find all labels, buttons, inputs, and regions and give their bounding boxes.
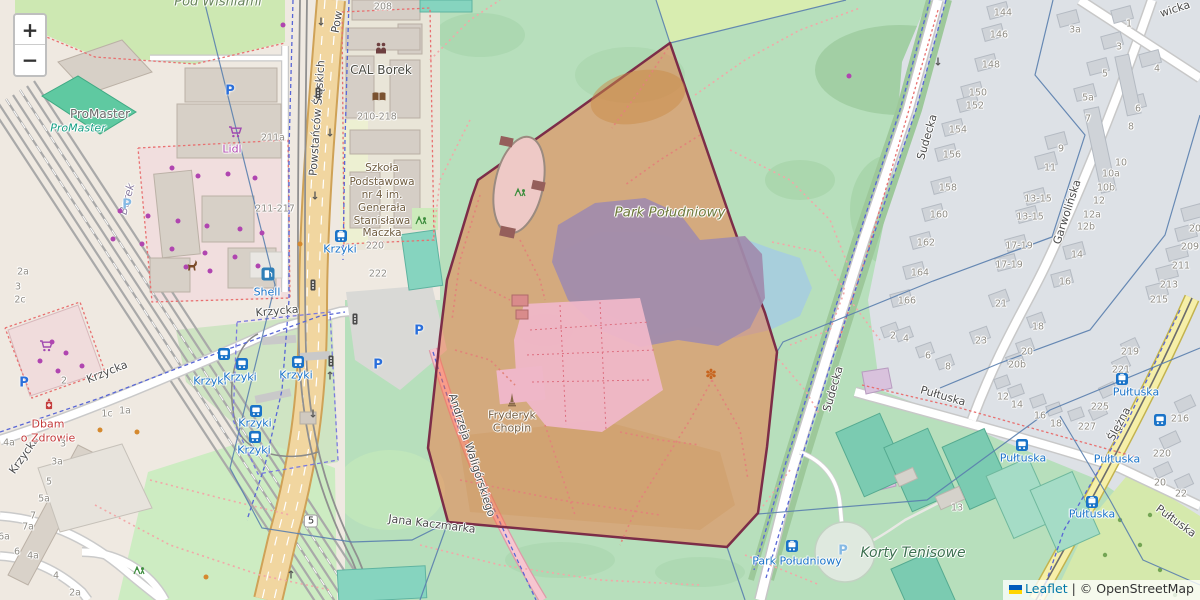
cart-icon xyxy=(228,126,242,139)
map-label: ProMaster xyxy=(50,123,105,134)
house-number: 20 xyxy=(1021,347,1033,357)
house-number: 222 xyxy=(369,269,387,279)
playground-icon xyxy=(132,564,146,576)
house-number: 4 xyxy=(903,334,909,344)
house-number: 4a xyxy=(27,551,39,561)
bus-icon xyxy=(218,348,231,361)
map-label: Szkoła xyxy=(365,163,399,174)
poi-dot xyxy=(170,166,175,171)
poi-dot xyxy=(281,23,286,28)
house-number: 2a xyxy=(17,267,29,277)
trafficlight-icon xyxy=(329,356,334,367)
arrow-up-icon: ↑ xyxy=(325,371,334,382)
zoom-in-button[interactable]: + xyxy=(15,15,45,45)
house-number: 12b xyxy=(1077,222,1095,232)
map-label: Lidl xyxy=(222,144,241,155)
zoom-control: + − xyxy=(13,13,47,77)
trafficlight-icon xyxy=(353,314,358,325)
house-number: 210-218 xyxy=(357,112,397,122)
house-number: 211 xyxy=(1172,261,1190,271)
house-number: 13-15 xyxy=(1024,194,1052,204)
house-number: 12 xyxy=(997,392,1009,402)
house-number: 156 xyxy=(943,150,961,160)
map-label: Pułtuska xyxy=(1113,387,1159,398)
house-number: 10a xyxy=(1102,169,1120,179)
map-label: Pułtuska xyxy=(1000,453,1046,464)
tram-icon xyxy=(786,540,799,553)
map-label: wicka xyxy=(1159,0,1192,19)
house-number: 227 xyxy=(1078,422,1096,432)
house-number: 216 xyxy=(1171,414,1189,424)
monument-icon xyxy=(508,393,517,407)
house-number: 3 xyxy=(1116,42,1122,52)
arrow-down-icon: ↓ xyxy=(308,409,317,420)
map-label: Pod Wiśniami xyxy=(174,0,262,9)
map-label: nr 4 im. xyxy=(362,190,403,201)
poi-dot xyxy=(118,209,123,214)
house-number: 211-217 xyxy=(255,204,295,214)
poi-dot xyxy=(203,251,208,256)
attribution: Leaflet | © OpenStreetMap xyxy=(1003,580,1200,600)
house-number: 20b xyxy=(1008,360,1026,370)
poi-dot xyxy=(140,242,145,247)
map-label: Jana Kaczmarka xyxy=(388,513,476,535)
house-number: 18 xyxy=(1050,419,1062,429)
fuel-icon xyxy=(262,268,275,281)
map-label: Krzyki xyxy=(237,445,270,456)
map-label: Krzycka xyxy=(255,304,299,319)
trafficlight-icon xyxy=(316,88,321,99)
parking-icon: P xyxy=(19,377,29,390)
house-number: 20 xyxy=(1154,478,1166,488)
house-number: 220 xyxy=(366,241,384,251)
house-number: 152 xyxy=(966,101,984,111)
house-number: 2 xyxy=(61,376,67,386)
house-number: 7 xyxy=(30,511,36,521)
house-number: 20 xyxy=(1189,224,1200,234)
map-canvas[interactable]: Powstańców Ś​ląskichPowKrzyckaKrzyckaKrz… xyxy=(0,0,1200,600)
house-number: 5 xyxy=(46,477,52,487)
map-label: Stanisława xyxy=(354,216,411,227)
map-label: Fryderyk xyxy=(488,410,536,421)
house-number: 6 xyxy=(925,351,931,361)
house-number: 225 xyxy=(1091,402,1109,412)
house-number: 2c xyxy=(14,295,25,305)
map-label: Pułtuska xyxy=(1069,509,1115,520)
house-number: 148 xyxy=(982,60,1000,70)
house-number: 14 xyxy=(1011,400,1023,410)
house-number: 12a xyxy=(1083,210,1101,220)
house-number: 5 xyxy=(1102,69,1108,79)
map-label: Krzycka xyxy=(85,359,129,385)
poi-dot xyxy=(208,269,213,274)
poi-dot xyxy=(205,224,210,229)
house-number: 9 xyxy=(1058,144,1064,154)
tram-icon xyxy=(1116,373,1129,386)
ukraine-flag-icon xyxy=(1009,585,1022,594)
playground-icon xyxy=(414,214,428,226)
book-icon xyxy=(372,92,387,103)
house-number: 7a xyxy=(22,522,34,532)
bus-icon xyxy=(1154,414,1167,427)
poi-dot xyxy=(204,575,209,580)
house-number: 219 xyxy=(1121,347,1139,357)
flower-icon: ✽ xyxy=(705,368,717,382)
house-number: 220 xyxy=(1153,449,1171,459)
map-label: Krzyki xyxy=(323,244,356,255)
poi-dot xyxy=(50,340,55,345)
map-label: Ślężna xyxy=(1106,405,1133,442)
map-label: CAL Borek xyxy=(350,64,412,76)
poi-dot xyxy=(135,430,140,435)
house-number: 158 xyxy=(939,183,957,193)
map-label: ProMaster xyxy=(70,108,130,120)
bus-icon xyxy=(249,431,262,444)
house-number: 6a xyxy=(0,532,10,542)
house-number: 8 xyxy=(1128,122,1134,132)
house-number: 5a xyxy=(1082,93,1094,103)
house-number: 14 xyxy=(1071,250,1083,260)
house-number: 146 xyxy=(990,30,1008,40)
poi-dot xyxy=(38,359,43,364)
house-number: 23 xyxy=(975,336,987,346)
bus-icon xyxy=(1016,439,1029,452)
poi-dot xyxy=(196,174,201,179)
map-label: Pułtuska xyxy=(1094,454,1140,465)
osm-copyright: © OpenStreetMap xyxy=(1080,581,1194,596)
arrow-down-icon: ↓ xyxy=(316,17,325,28)
house-number: 12 xyxy=(1093,196,1105,206)
house-number: 11 xyxy=(1044,163,1056,173)
parking-light-icon: P xyxy=(838,545,848,558)
poi-dot xyxy=(253,176,258,181)
house-number: 10b xyxy=(1097,183,1115,193)
map-label: Pułtuska xyxy=(1154,503,1198,539)
map-label: Maczka xyxy=(362,228,401,239)
poi-dot xyxy=(111,237,116,242)
poi-dot xyxy=(847,74,852,79)
house-number: 7 xyxy=(1085,114,1091,124)
arrow-down-icon: ↓ xyxy=(310,191,319,202)
house-number: 208 xyxy=(374,2,392,12)
map-label: Pow xyxy=(330,10,345,34)
trafficlight-icon xyxy=(311,280,316,291)
map-labels-layer: Powstańców Ś​ląskichPowKrzyckaKrzyckaKrz… xyxy=(0,0,1200,600)
map-label: Park Południowy xyxy=(614,206,725,220)
house-number: 144 xyxy=(994,8,1012,18)
house-number: 4a xyxy=(3,438,15,448)
poi-dot xyxy=(170,247,175,252)
zoom-out-button[interactable]: − xyxy=(15,45,45,75)
house-number: 16 xyxy=(1034,411,1046,421)
house-number: 13 xyxy=(951,503,963,513)
arrow-up-icon: ↑ xyxy=(286,570,295,581)
poi-dot xyxy=(146,214,151,219)
pharmacy-icon xyxy=(43,398,56,411)
map-label: Sudecka xyxy=(915,113,938,161)
poi-dot xyxy=(56,369,61,374)
bus-icon xyxy=(250,405,263,418)
poi-dot xyxy=(298,242,303,247)
parking-light-icon: P xyxy=(122,199,132,212)
house-number: 4 xyxy=(1154,64,1160,74)
house-number: 209 xyxy=(1181,242,1199,252)
map-label: o Zdrowie xyxy=(21,433,76,444)
house-number: 6 xyxy=(14,547,20,557)
tram-icon xyxy=(335,230,348,243)
house-number: 17-19 xyxy=(995,260,1023,270)
house-number: 160 xyxy=(930,210,948,220)
map-label: Korty Tenisowe xyxy=(860,546,965,560)
house-number: 211a xyxy=(261,133,285,143)
people-icon xyxy=(374,42,389,55)
map-label: Chopin xyxy=(493,423,531,434)
poi-dot xyxy=(184,265,189,270)
map-label: Garwolińska xyxy=(1051,178,1082,245)
house-number: 3a xyxy=(51,457,63,467)
arrow-down-icon: ↓ xyxy=(933,57,942,68)
route-shield: 5 xyxy=(304,515,318,528)
house-number: 17-19 xyxy=(1005,241,1033,251)
poi-dot xyxy=(80,364,85,369)
house-number: 16 xyxy=(1059,277,1071,287)
poi-dot xyxy=(260,231,265,236)
house-number: 150 xyxy=(969,88,987,98)
house-number: 4 xyxy=(53,571,59,581)
house-number: 1c xyxy=(101,409,112,419)
poi-dot xyxy=(64,351,69,356)
map-label: Pułtuska xyxy=(919,384,967,407)
map-label: Generała xyxy=(358,203,406,214)
house-number: 2 xyxy=(890,331,896,341)
house-number: 164 xyxy=(911,268,929,278)
poi-dot xyxy=(176,219,181,224)
house-number: 8 xyxy=(945,362,951,372)
map-label: Park Południowy xyxy=(752,556,842,567)
poi-dot xyxy=(226,172,231,177)
house-number: 18 xyxy=(1032,322,1044,332)
house-number: 213 xyxy=(1160,280,1178,290)
map-label: Powstańców Ś​ląskich xyxy=(307,60,326,176)
house-number: 13-15 xyxy=(1016,212,1044,222)
house-number: 2a xyxy=(69,588,81,598)
house-number: 10 xyxy=(1115,158,1127,168)
poi-dot xyxy=(256,264,261,269)
house-number: 3a xyxy=(1069,25,1081,35)
map-label: Krzyki xyxy=(193,376,226,387)
poi-dot xyxy=(233,255,238,260)
house-number: 6 xyxy=(1135,104,1141,114)
house-number: 1a xyxy=(119,406,131,416)
poi-dot xyxy=(238,227,243,232)
map-label: Krzyki xyxy=(279,370,312,381)
house-number: 22 xyxy=(1175,489,1187,499)
house-number: 166 xyxy=(898,296,916,306)
tram-icon xyxy=(1086,496,1099,509)
map-label: Sudecka xyxy=(821,365,844,413)
arrow-down-icon: ↓ xyxy=(325,128,334,139)
poi-dot xyxy=(98,428,103,433)
house-number: 5a xyxy=(38,494,50,504)
house-number: 154 xyxy=(949,125,967,135)
house-number: 1 xyxy=(1126,19,1132,29)
map-label: Krzyki xyxy=(238,418,271,429)
parking-icon: P xyxy=(373,359,383,372)
playground-icon xyxy=(513,186,527,198)
map-label: Krzyki xyxy=(223,372,256,383)
house-number: 3 xyxy=(15,282,21,292)
map-label: Podstawowa xyxy=(349,177,414,188)
attribution-separator: | xyxy=(1068,581,1080,596)
parking-icon: P xyxy=(414,325,424,338)
house-number: 21 xyxy=(995,299,1007,309)
bus-icon xyxy=(292,356,305,369)
house-number: 162 xyxy=(917,238,935,248)
parking-icon: P xyxy=(225,85,235,98)
house-number: 215 xyxy=(1150,295,1168,305)
leaflet-link[interactable]: Leaflet xyxy=(1025,581,1068,596)
bus-icon xyxy=(236,358,249,371)
house-number: 3 xyxy=(60,439,66,449)
map-label: Dbam xyxy=(32,419,65,430)
map-label: Shell xyxy=(254,287,281,298)
